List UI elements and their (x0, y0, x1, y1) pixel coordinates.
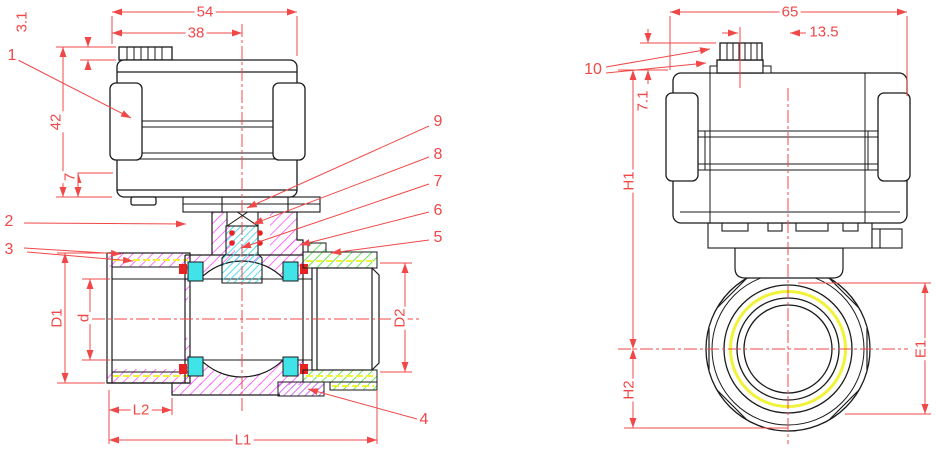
dim-E1: E1 (914, 338, 929, 360)
dim-L1: L1 (233, 433, 254, 448)
mounting-plate-side (708, 223, 902, 248)
callout-4: 4 (418, 412, 431, 428)
callout-2: 2 (3, 214, 16, 230)
dim-H1: H1 (622, 169, 637, 192)
dim-65: 65 (780, 5, 801, 20)
dim-7-1: 7.1 (636, 89, 651, 114)
callout-7: 7 (432, 174, 445, 190)
dim-38: 38 (186, 26, 207, 41)
valve-engineering-drawing (0, 0, 936, 450)
dim-D2: D2 (393, 306, 408, 329)
dim-D1: D1 (50, 306, 65, 329)
dim-7-step: 7 (63, 171, 78, 183)
bottom-adapter (278, 382, 324, 396)
callout-5: 5 (432, 230, 445, 246)
dim-54: 54 (195, 5, 216, 20)
callout-9: 9 (432, 114, 445, 130)
actuator-ear-right (273, 83, 305, 160)
dim-L2: L2 (131, 403, 152, 418)
actuator-body (110, 47, 305, 205)
dim-H2: H2 (622, 378, 637, 401)
dim-42: 42 (49, 112, 64, 133)
actuator-ear-left (110, 83, 142, 160)
callout-10: 10 (582, 62, 604, 78)
actuator-ear-left-side (666, 93, 698, 181)
callout-3: 3 (3, 242, 16, 258)
callout-6: 6 (432, 203, 445, 219)
side-view (606, 12, 931, 444)
left-port (107, 253, 190, 383)
left-port-threads (113, 260, 188, 376)
actuator-ear-right-side (878, 93, 910, 181)
callout-8: 8 (432, 147, 445, 163)
valve-neck (735, 248, 843, 278)
drawing-canvas: 54 38 3.1 42 7 D1 d L2 L1 D2 1 2 3 4 5 6… (0, 0, 936, 450)
front-view (18, 12, 429, 444)
dim-13-5: 13.5 (807, 25, 840, 40)
dim-3-1: 3.1 (15, 10, 30, 35)
callout-1: 1 (6, 48, 19, 64)
dim-d: d (77, 312, 92, 324)
mounting-bracket (183, 197, 320, 212)
